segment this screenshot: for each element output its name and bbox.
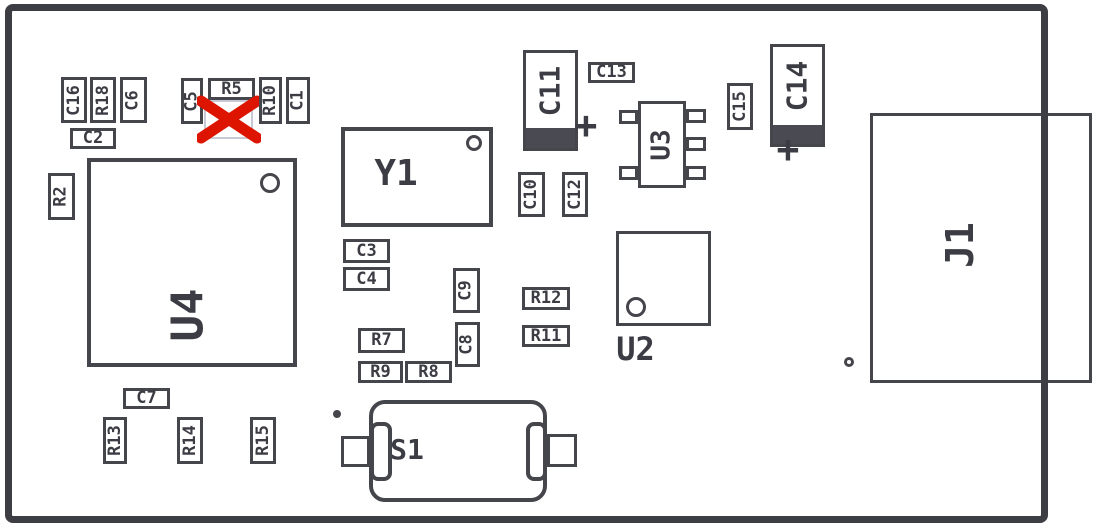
u3-pin-5 — [686, 166, 706, 180]
component-r15: R15 — [250, 417, 276, 464]
polarity-band — [526, 128, 575, 148]
component-r13: R13 — [103, 417, 127, 464]
component-r18: R18 — [90, 77, 116, 123]
component-j1: J1 — [870, 113, 1092, 383]
component-label-u3: U3 — [649, 129, 675, 160]
u3-pin-3 — [686, 109, 706, 123]
switch-pin-left — [341, 436, 370, 467]
component-label-u2: U2 — [616, 333, 655, 365]
component-label-c8: C8 — [459, 334, 476, 354]
component-u2: U2 — [616, 231, 711, 326]
component-s1: S1 — [341, 400, 577, 502]
component-c7: C7 — [123, 388, 170, 409]
component-label-r8: R8 — [418, 364, 438, 381]
component-label-r9: R9 — [370, 364, 390, 381]
component-label-c16: C16 — [66, 85, 83, 116]
component-c16: C16 — [61, 77, 87, 123]
pin1-indicator-circle — [466, 135, 482, 151]
u3-pin-2 — [619, 166, 638, 180]
component-label-s1: S1 — [390, 436, 424, 464]
component-label-c2: C2 — [83, 130, 103, 147]
j1-pin1-dot — [844, 357, 854, 367]
component-r2: R2 — [48, 173, 75, 220]
component-u4: U4 — [87, 158, 297, 367]
component-c15: C15 — [727, 83, 753, 130]
component-label-c15: C15 — [732, 91, 749, 122]
component-label-r13: R13 — [107, 425, 124, 456]
component-r12: R12 — [522, 287, 570, 310]
switch-actuator-right — [526, 422, 547, 481]
component-c8: C8 — [455, 322, 480, 367]
component-r7: R7 — [358, 328, 405, 353]
component-c4: C4 — [343, 267, 390, 291]
component-r8: R8 — [405, 361, 452, 383]
component-label-u4: U4 — [166, 288, 210, 341]
component-label-r18: R18 — [95, 85, 112, 116]
s1-orientation-dot — [333, 410, 341, 418]
not-populated-marker — [197, 94, 261, 144]
component-layer: C16R18C6C2C5R5R10C1R2U4Y1C11+C13U3C15C14… — [0, 0, 1100, 527]
u3-pin-4 — [686, 137, 706, 151]
pcb-assembly-diagram: C16R18C6C2C5R5R10C1R2U4Y1C11+C13U3C15C14… — [0, 0, 1100, 527]
component-r14: R14 — [177, 417, 203, 464]
component-label-c10: C10 — [523, 179, 540, 210]
component-label-r15: R15 — [255, 425, 272, 456]
u3-pin-1 — [619, 110, 638, 124]
component-label-r14: R14 — [182, 425, 199, 456]
component-label-c4: C4 — [356, 271, 376, 288]
component-r11: R11 — [522, 325, 570, 347]
component-c13: C13 — [588, 62, 635, 83]
component-c6: C6 — [120, 77, 147, 123]
component-u3: U3 — [638, 101, 686, 188]
component-r10: R10 — [259, 77, 282, 124]
component-c11: C11 — [523, 50, 578, 151]
component-label-c1: C1 — [290, 90, 307, 110]
component-label-c12: C12 — [567, 179, 584, 210]
component-label-c13: C13 — [596, 64, 627, 81]
component-c10: C10 — [518, 172, 545, 217]
red-x-icon — [197, 94, 261, 144]
component-c12: C12 — [562, 172, 588, 217]
component-label-c9: C9 — [458, 280, 475, 300]
component-label-r2: R2 — [53, 186, 70, 206]
polarity-plus: + — [575, 106, 598, 144]
component-label-r10: R10 — [262, 85, 279, 116]
component-c1: C1 — [286, 77, 310, 124]
component-r9: R9 — [358, 361, 403, 383]
polarity-plus: + — [777, 130, 800, 168]
component-c2: C2 — [70, 128, 116, 149]
component-label-c6: C6 — [125, 90, 142, 110]
component-c3: C3 — [343, 239, 390, 263]
component-label-c7: C7 — [136, 390, 156, 407]
switch-actuator-left — [370, 422, 392, 481]
switch-pin-right — [547, 434, 577, 467]
component-label-r11: R11 — [531, 328, 562, 345]
component-label-j1: J1 — [941, 222, 979, 268]
component-label-y1: Y1 — [374, 156, 417, 192]
pin1-indicator-circle — [626, 297, 646, 317]
component-y1: Y1 — [341, 127, 493, 227]
component-c9: C9 — [453, 268, 480, 313]
component-label-c3: C3 — [356, 243, 376, 260]
component-label-r7: R7 — [371, 332, 391, 349]
component-label-c14: C14 — [784, 61, 812, 112]
component-label-r12: R12 — [531, 290, 562, 307]
component-label-c11: C11 — [537, 65, 565, 116]
pin1-indicator-circle — [260, 173, 280, 193]
